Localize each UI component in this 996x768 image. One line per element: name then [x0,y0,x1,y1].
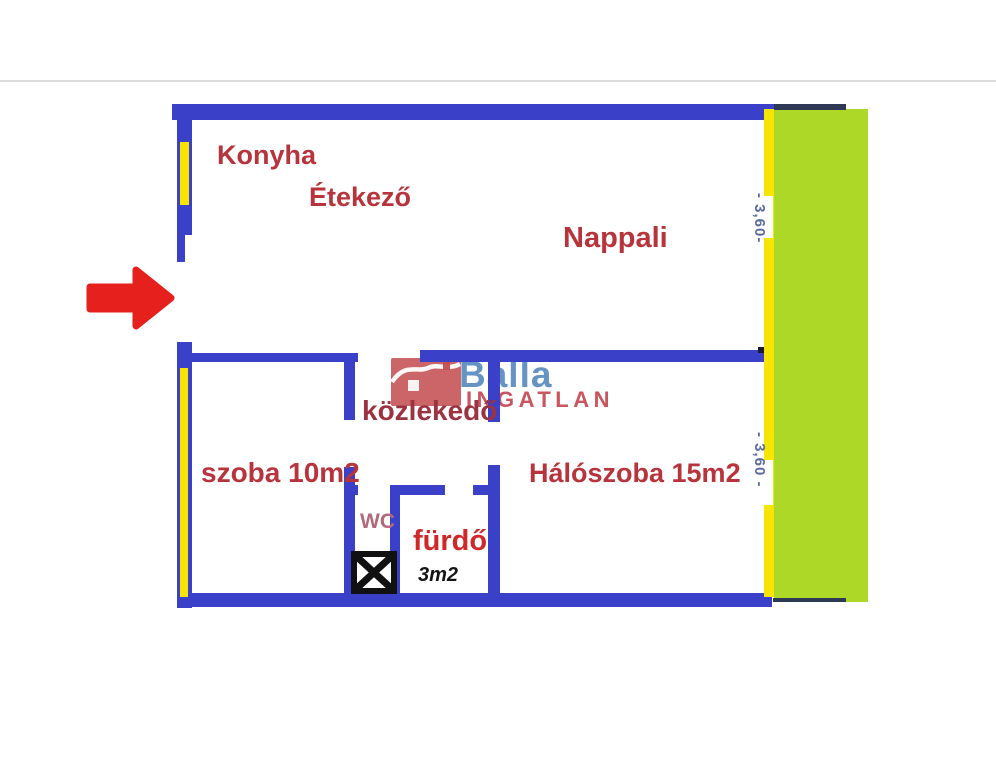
room-label-haloszoba: Hálószoba 15m2 [529,460,741,487]
dimension-right-lower: - 3,60 - [752,432,767,488]
shaft-x-icon [351,551,397,594]
balcony-top-edge [772,104,846,110]
wall-mid-left [191,353,358,362]
wall-left-door-jamb [177,235,185,262]
balcony-bottom-edge [773,598,846,602]
wall-bottom [177,593,772,607]
entrance-arrow-icon [84,262,176,334]
wall-mid-right [420,350,768,362]
room-label-furdo: fürdő [413,527,487,556]
window-right-strip [764,109,774,597]
wall-top [172,104,774,120]
room-label-nappali: Nappali [563,224,668,253]
room-label-kozlekedo: közlekedő [362,397,497,425]
room-label-szoba: szoba 10m2 [201,459,360,487]
wall-mid-stub [344,355,355,420]
dimension-right-upper: - 3,60- [752,193,767,243]
wall-haloszoba-lower [488,465,500,600]
wall-furdo-top [390,485,445,495]
faint-top-line [0,80,996,82]
room-label-etekezo: Étekező [309,184,411,211]
balcony [774,109,868,602]
window-left-bottom [180,368,188,597]
room-label-wc: WC [360,511,395,532]
room-label-konyha: Konyha [217,142,316,169]
window-left-top [180,142,189,205]
room-label-furdo-size: 3m2 [418,565,458,585]
wall-haloszoba-door-stub [473,485,488,495]
floorplan-canvas: Balla INGATLAN Konyha Étekező Nappali kö… [0,0,996,768]
